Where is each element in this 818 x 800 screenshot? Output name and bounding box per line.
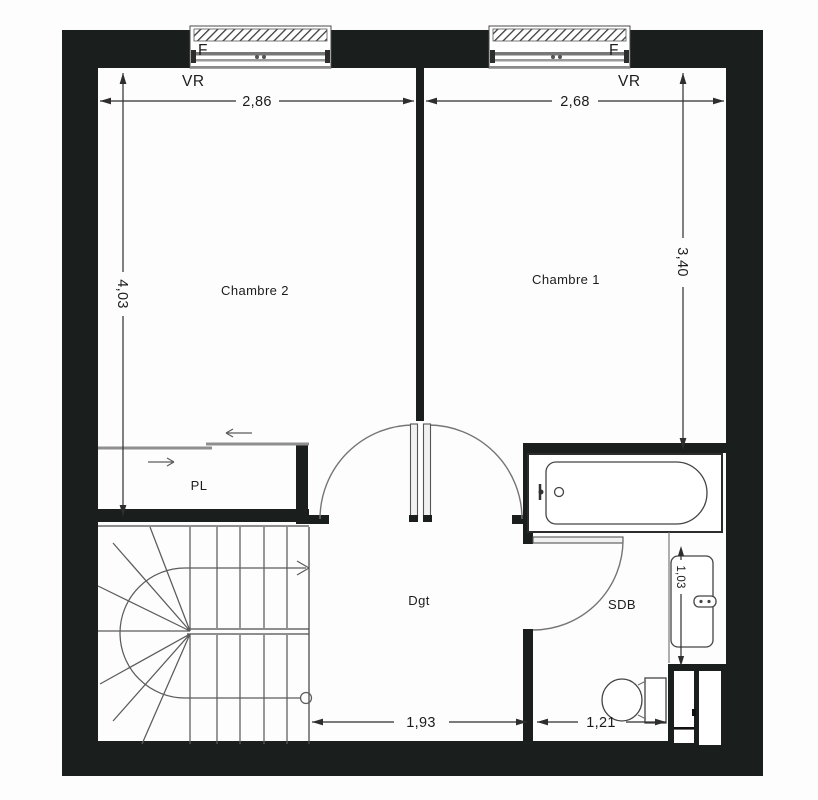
faucet-dot (707, 600, 710, 603)
toilet-tank (645, 678, 666, 723)
door-hinge-block (423, 515, 432, 522)
window-handle-dot (558, 55, 562, 59)
bathtub-drain (539, 490, 544, 495)
floor-plan: F VR F VR (0, 0, 818, 800)
shaft-opening (674, 671, 694, 743)
dimension-label: 2,86 (242, 94, 271, 110)
placard-bottom-wall (98, 509, 309, 522)
window-sill-line (193, 59, 328, 62)
window-type-label: F (198, 42, 208, 59)
shaft-opening (699, 671, 721, 745)
dimension-label: 4,03 (114, 279, 130, 308)
window-sill-line (492, 52, 627, 56)
shaft-notch (692, 709, 696, 716)
window-jamb (624, 50, 629, 63)
roller-shutter-label-right: VR (618, 73, 641, 90)
floor-plan-page: F VR F VR (0, 0, 818, 800)
window-jamb (191, 50, 196, 63)
window-handle-dot (262, 55, 266, 59)
dimension-label: 1,93 (406, 715, 435, 731)
door-hinge-block (409, 515, 418, 522)
window-jamb (490, 50, 495, 63)
window-handle-dot (255, 55, 259, 59)
partition-wall-bedrooms (416, 68, 424, 421)
window-sill-line (193, 52, 328, 56)
door-leaf (533, 537, 623, 543)
sdb-top-wall (533, 443, 726, 453)
room-label-sdb: SDB (608, 597, 636, 612)
roller-shutter-box (194, 29, 327, 41)
bathtub (528, 454, 722, 532)
room-label-chambre2: Chambre 2 (221, 283, 289, 298)
dimension-label: 3,40 (674, 247, 690, 276)
room-label-chambre1: Chambre 1 (532, 272, 600, 287)
room-label-dgt: Dgt (408, 593, 429, 608)
sdb-left-wall-lower (523, 629, 533, 746)
window-jamb (325, 50, 330, 63)
window-right: F (489, 26, 630, 68)
door-leaf-right (424, 424, 431, 518)
window-inner-edge (190, 66, 331, 68)
doorway-stub-left (305, 515, 329, 524)
vanity-handle (694, 596, 716, 607)
bathtub-faucet (555, 488, 564, 497)
window-sill-line (492, 59, 627, 62)
roller-shutter-label-left: VR (182, 73, 205, 90)
dimension-label: 2,68 (560, 94, 589, 110)
door-leaf-left (411, 424, 418, 518)
duct-shaft (668, 664, 726, 745)
dimension-label: 1,21 (586, 715, 615, 731)
window-inner-edge (489, 66, 630, 68)
window-left: F (190, 26, 331, 68)
bathtub-basin (546, 462, 707, 524)
room-label-pl: PL (191, 478, 208, 493)
faucet-dot (699, 600, 702, 603)
shaft-divider (674, 727, 694, 730)
roller-shutter-box (493, 29, 626, 41)
window-type-label: F (609, 42, 619, 59)
dimension-label: 1,03 (674, 565, 686, 588)
window-handle-dot (551, 55, 555, 59)
